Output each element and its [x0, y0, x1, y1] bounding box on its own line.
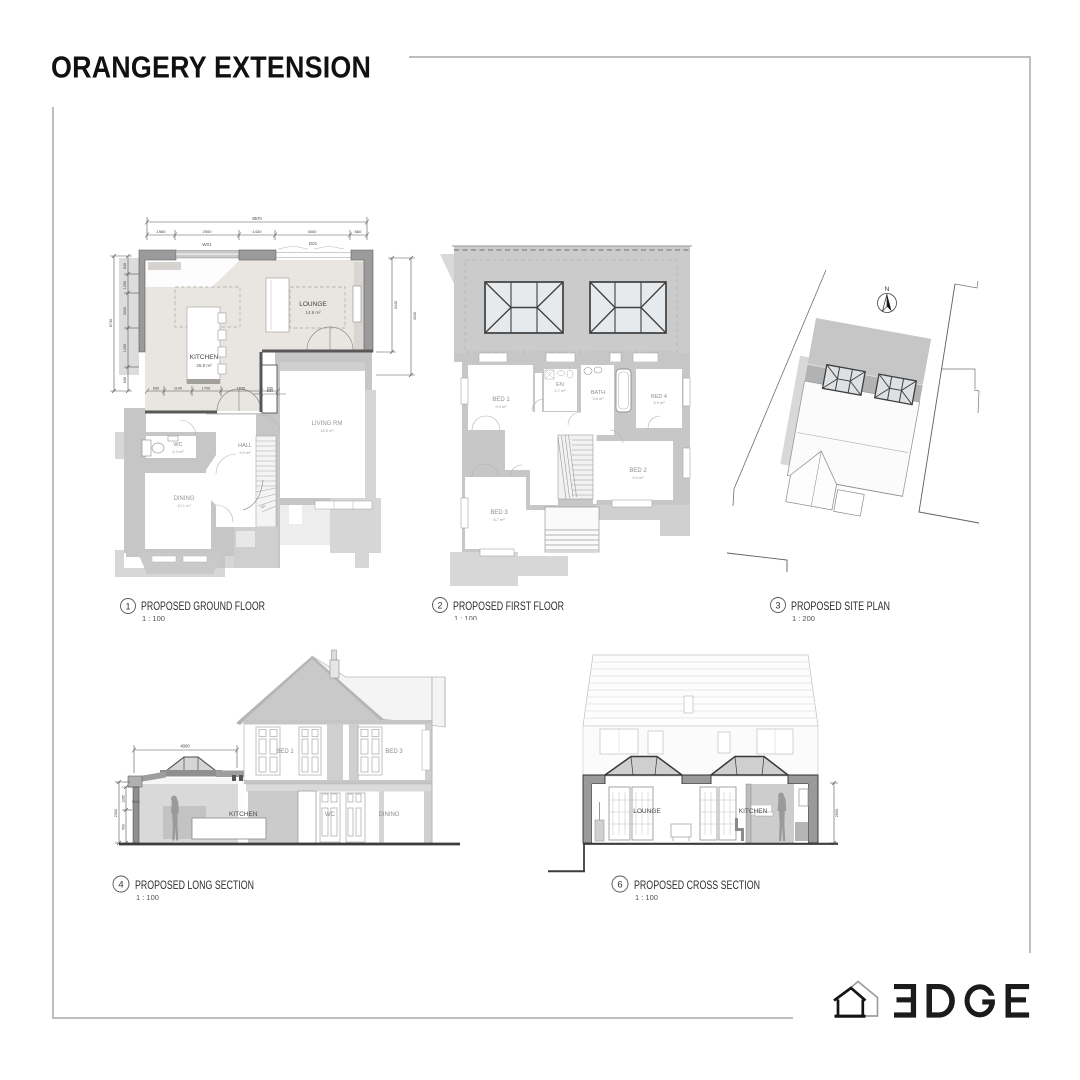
svg-text:3440: 3440: [394, 301, 398, 309]
svg-text:D01: D01: [309, 241, 318, 246]
svg-text:1 : 100: 1 : 100: [635, 893, 658, 902]
svg-text:KITCHEN: KITCHEN: [739, 808, 768, 815]
svg-text:1706: 1706: [202, 387, 210, 391]
svg-text:N: N: [885, 286, 890, 293]
svg-text:8.7 m²: 8.7 m²: [493, 517, 505, 522]
svg-text:1980: 1980: [157, 229, 167, 234]
svg-text:2.7 m²: 2.7 m²: [554, 388, 566, 393]
svg-text:3: 3: [775, 601, 780, 611]
svg-text:2300: 2300: [114, 809, 118, 817]
svg-text:LOUNGE: LOUNGE: [299, 301, 327, 308]
svg-text:LIVING RM: LIVING RM: [312, 421, 343, 427]
svg-text:2.4 m²: 2.4 m²: [172, 449, 184, 454]
svg-text:1140: 1140: [174, 387, 182, 391]
svg-text:1250: 1250: [123, 344, 127, 352]
svg-text:UP: UP: [261, 505, 267, 509]
svg-text:1430: 1430: [253, 229, 263, 234]
svg-text:2500: 2500: [203, 229, 213, 234]
svg-text:1250: 1250: [123, 281, 127, 289]
svg-text:1285: 1285: [122, 795, 126, 803]
svg-text:10.1 m²: 10.1 m²: [177, 503, 191, 508]
svg-text:1630: 1630: [237, 387, 245, 391]
svg-text:1: 1: [125, 602, 130, 612]
svg-text:4030: 4030: [413, 312, 417, 320]
svg-text:630: 630: [267, 387, 273, 391]
svg-text:KITCHEN: KITCHEN: [229, 811, 258, 818]
svg-text:2500: 2500: [835, 809, 839, 817]
svg-text:3000: 3000: [123, 307, 127, 315]
svg-text:BED 3: BED 3: [490, 510, 508, 516]
svg-text:630: 630: [153, 387, 159, 391]
svg-text:26.8 m²: 26.8 m²: [196, 363, 212, 368]
svg-text:4: 4: [118, 880, 123, 891]
svg-text:HALL: HALL: [238, 443, 252, 449]
svg-text:9.0 m²: 9.0 m²: [239, 450, 251, 455]
svg-text:900: 900: [122, 824, 126, 830]
svg-text:1 : 100: 1 : 100: [454, 614, 477, 620]
svg-text:WC: WC: [173, 442, 182, 448]
svg-text:3.5 m²: 3.5 m²: [592, 396, 604, 401]
svg-text:6: 6: [617, 880, 622, 891]
svg-text:W01: W01: [202, 242, 212, 247]
svg-text:630: 630: [123, 377, 127, 383]
svg-text:18.5 m²: 18.5 m²: [320, 428, 334, 433]
svg-text:LOUNGE: LOUNGE: [633, 808, 661, 815]
svg-text:BED 2: BED 2: [629, 468, 647, 474]
svg-text:560: 560: [355, 229, 362, 234]
svg-text:PROPOSED CROSS SECTION: PROPOSED CROSS SECTION: [634, 878, 760, 892]
svg-text:4000: 4000: [180, 744, 190, 749]
svg-text:DINING: DINING: [379, 812, 400, 818]
svg-text:14.9 m²: 14.9 m²: [305, 310, 321, 315]
svg-text:630: 630: [123, 263, 127, 269]
svg-text:3000: 3000: [308, 229, 318, 234]
svg-text:DINING: DINING: [174, 496, 195, 502]
svg-text:2: 2: [437, 601, 442, 611]
svg-text:5.9 m²: 5.9 m²: [653, 400, 665, 405]
svg-text:PROPOSED SITE PLAN: PROPOSED SITE PLAN: [791, 599, 890, 613]
svg-text:PROPOSED FIRST FLOOR: PROPOSED FIRST FLOOR: [453, 599, 564, 613]
svg-text:9.0 m²: 9.0 m²: [632, 475, 644, 480]
svg-text:BED 1: BED 1: [492, 397, 510, 403]
svg-text:9.9 m²: 9.9 m²: [495, 404, 507, 409]
svg-text:BED 3: BED 3: [385, 749, 403, 755]
svg-text:PROPOSED LONG SECTION: PROPOSED LONG SECTION: [135, 878, 254, 892]
svg-text:6730: 6730: [109, 319, 113, 327]
svg-text:1 : 100: 1 : 100: [142, 614, 165, 623]
svg-text:W01: W01: [132, 799, 141, 804]
svg-text:1 : 100: 1 : 100: [136, 893, 159, 902]
svg-text:BED 1: BED 1: [276, 749, 294, 755]
svg-text:8570: 8570: [252, 216, 262, 221]
svg-text:WC: WC: [325, 812, 336, 818]
svg-text:KITCHEN: KITCHEN: [190, 354, 219, 361]
svg-text:1 : 200: 1 : 200: [792, 614, 815, 623]
svg-text:PROPOSED GROUND FLOOR: PROPOSED GROUND FLOOR: [141, 599, 265, 613]
